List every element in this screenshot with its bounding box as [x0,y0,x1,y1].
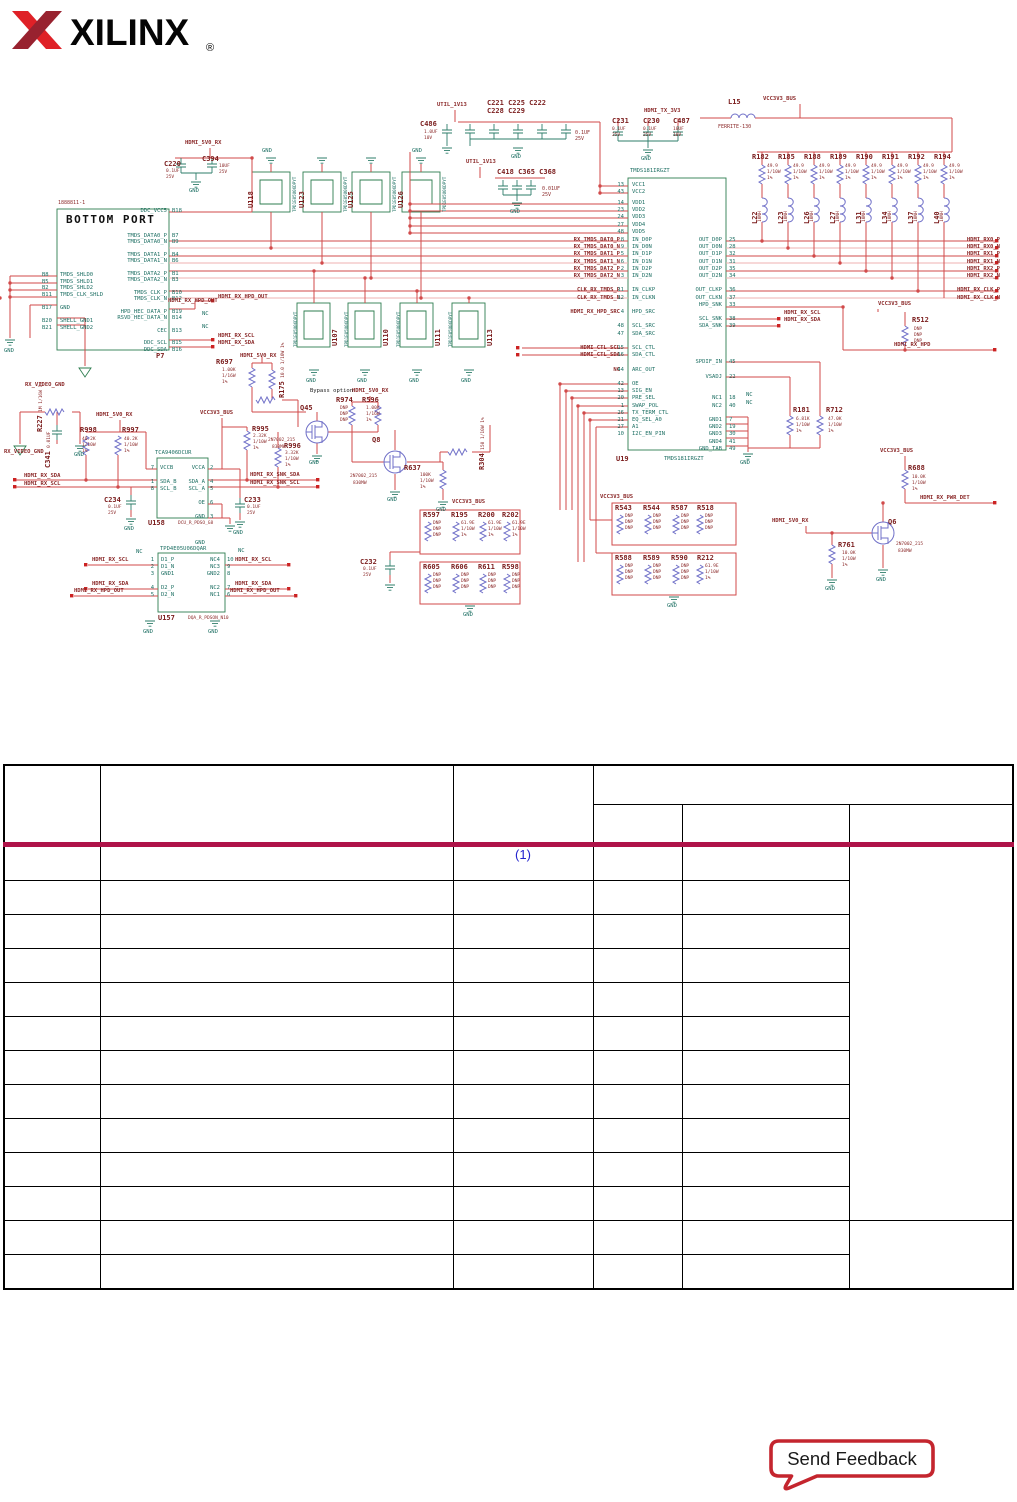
no-connect-flag: NC [202,324,209,331]
table-cell [4,1153,100,1187]
net-label: HDMI_RX_SDA [784,317,820,324]
ref-designator: R606 [451,563,468,571]
net-label: HDMI_RX_PWR_DET [920,495,970,502]
ref-designator: R589 [643,554,660,562]
component-value: 150 1/10W 1% [481,417,486,450]
table-cell [682,1255,849,1290]
ref-designator: U123 [298,191,306,208]
table-cell [682,949,849,983]
table-cell [100,1017,453,1051]
ref-designator: C230 [643,117,660,125]
table-cell [682,845,849,881]
component-value: 0.01UF 25V [542,186,560,199]
component-value: DNP DNP DNP [340,406,348,423]
ref-designator: R192 [908,153,925,161]
table-cell [453,983,593,1017]
component-value: DNP DNP DNP [512,573,520,590]
ref-designator: R512 [912,316,929,324]
resistor-label: R175 10.0 1/10W 1% [278,343,287,398]
table-cell [100,881,453,915]
no-connect-flag: NC [238,548,245,555]
component-value: 10NH [862,211,868,222]
table-cell [593,1153,682,1187]
feedback-button-label[interactable]: Send Feedback [787,1448,917,1469]
ref-designator: R543 [615,504,632,512]
ref-designator: L15 [728,98,741,106]
component-value: 49.9 1/10W 1% [845,164,859,181]
table-cell [593,881,682,915]
gnd-label: GND [4,348,14,355]
ref-designator: R597 [423,511,440,519]
ref-designator: R191 [882,153,899,161]
no-connect-flag: NC [202,311,209,318]
gnd-label: GND [463,612,473,619]
net-label: HDMI_5V0_RX [96,412,132,419]
component-value: 40.2K 1/10W 1% [82,437,96,454]
component-value: 10NH [758,211,764,222]
component-value: 1.0UF 10V [424,130,438,142]
no-connect-flag: NC [136,549,143,556]
pin-numbers: B18 B7 B9 B4 B6 B1 B3 B10 B12 B19 B14 B1… [172,208,182,353]
part-number: 2N7002_215 [350,474,377,480]
table-cell [682,881,849,915]
gnd-label: GND [189,188,199,195]
ref-designator: R598 [502,563,519,571]
ref-designator: R998 [80,426,97,434]
pin-numbers: 8 9 5 6 2 3 11 12 4 48 47 15 16 44 42 13… [610,237,624,439]
package-name: DQA_R_PDSON_N10 [188,616,229,622]
component-value: 49.9 1/10W 1% [897,164,911,181]
table-cell [453,881,593,915]
table-cell [682,1085,849,1119]
net-label: HDMI_RX_SCL [24,481,60,488]
table-cell [453,1187,593,1221]
gnd-label: GND [306,378,316,385]
table-cell [4,1221,100,1255]
table-cell [4,1119,100,1153]
component-value: 40.2K 1/10W 1% [124,437,138,454]
component-value: 10.0K 1/10W 1% [912,475,926,492]
component-value: 49.9 1/10W 1% [819,164,833,181]
gnd-label: GND [124,526,134,533]
resistor-label: R227 1M 1/16W 1% [36,382,45,432]
resistor-label: R304 150 1/10W 1% [478,417,487,470]
table-cell [593,1085,682,1119]
ref-designator: R181 [793,406,810,414]
component-value: 0.1UF 25V [108,505,122,517]
ref-designator: R182 [752,153,769,161]
table-subheader-cell [682,805,849,845]
table-cell [593,1221,682,1255]
ref-designator: R588 [615,554,632,562]
component-value: FERRITE-130 [718,124,751,130]
ref-designator: R587 [671,504,688,512]
pin-numbers: 25 28 32 31 35 34 36 37 33 38 39 45 22 1… [729,237,736,453]
table-cell [593,949,682,983]
component-value: 10NH [784,211,790,222]
ref-designator: C232 [360,558,377,566]
table-cell [682,1153,849,1187]
gnd-label: GND [412,148,422,155]
ref-designator: U158 [148,519,165,527]
gnd-label: GND [641,156,651,163]
ref-designator: R195 [451,511,468,519]
ref-designator: R194 [934,153,951,161]
component-value: 49.9 1/10W 1% [949,164,963,181]
table-cell [593,1119,682,1153]
ref-designator: R974 [336,396,353,404]
table-cell [453,1085,593,1119]
ref-designator: R518 [697,504,714,512]
table-cell [4,845,100,881]
table-header-cell [4,765,100,845]
gnd-label: GND [667,603,677,610]
part-number: TPD1E05U06DPYT [342,177,349,212]
table-cell [4,949,100,983]
no-connect-flag: NC [746,392,753,399]
table-row: (1) [4,845,1013,881]
ref-designator: C233 [244,496,261,504]
table-cell [682,1051,849,1085]
part-number: 1888811-1 [58,200,85,206]
component-value: 10NH [940,211,946,222]
component-value: 1.00K 1/16W 1% [366,406,380,423]
schematic-note: Bypass option [310,388,353,395]
net-label: VCC3V3_BUS [878,301,911,308]
ref-designator: Q6 [888,518,896,526]
ref-designator: Q8 [372,436,380,444]
table-cell [100,949,453,983]
component-value: 0.1UF 25V [575,130,590,143]
gnd-label: GND [876,577,886,584]
ref-designator: R189 [830,153,847,161]
table-cell [100,1085,453,1119]
component-value: 10.0K 1/10W 1% [842,551,856,568]
ref-designator: R200 [478,511,495,519]
table-header-cell [453,765,593,845]
ref-designator: R637 [404,464,421,472]
table-cell [100,1153,453,1187]
ref-designator: R611 [478,563,495,571]
gnd-label: GND [262,148,272,155]
table-cell [453,915,593,949]
table-cell [100,915,453,949]
component-value: DNP DNP DNP [625,514,633,531]
component-value: DNP DNP DNP [705,514,713,531]
send-feedback-button[interactable]: Send Feedback [765,1438,951,1498]
component-value: 3.32K 1/10W 1% [285,451,299,468]
ref-designator: C486 [420,120,437,128]
pin-numbers: 4 5 [146,585,154,599]
gnd-label: GND [143,629,153,636]
component-value: 10.0 1/10W 1% [281,343,286,378]
part-number: TPD1E05U06DPYT [441,177,448,212]
pin-numbers: 7 1 8 [146,465,154,493]
part-number: TPD1E05U06DPYT [447,312,454,347]
component-value: DNP DNP DNP [461,573,469,590]
table-header-cell [100,765,453,845]
net-label: HDMI_RX_SDA [24,473,60,480]
table-cell [453,1119,593,1153]
component-value: DNP DNP DNP [433,521,441,538]
ref-designator: R185 [778,153,795,161]
ref-designator: U118 [247,191,255,208]
ref-designator: P7 [156,352,164,360]
gnd-label: GND [309,460,319,467]
table-cell [453,1051,593,1085]
pin-names: NC4 NC3 GND2 [192,557,220,578]
table-subheader-cell [849,805,1013,845]
table-cell [4,1017,100,1051]
table-cell [593,1255,682,1290]
net-label: HDMI_5V0_RX [772,518,808,525]
pin-numbers: 14 23 24 27 48 [610,200,624,236]
net-label: VCC3V3_BUS [200,410,233,417]
component-value: 0.1UF 25V [166,169,180,181]
ref-designator: C418 C365 C368 [497,168,556,176]
component-value: DNP DNP DNP [625,564,633,581]
ref-designator: U19 [616,455,629,463]
pin-names: D2_P D2_N [161,585,174,599]
ref-designator: U110 [382,329,390,346]
component-value: 61.9E 1/10W 1% [461,521,475,538]
ref-designator: U157 [158,614,175,622]
component-value: 10NH [888,211,894,222]
component-value: 10NH [914,211,920,222]
pin-numbers: B8 B5 B2 B11 B17 B20 B21 [42,272,55,331]
table-cell [453,1153,593,1187]
component-value: 10UF 25V [219,164,230,176]
net-label: HDMI_RX_HPD_OUT [168,298,218,305]
ref-designator: C234 [104,496,121,504]
pin-names: VDD1 VDD2 VDD3 VDD4 VDD5 [632,200,645,236]
table-cell [4,1051,100,1085]
net-label: UTIL_1V13 [466,159,496,166]
net-label: HDMI_RX_HPD_OUT [230,588,280,595]
table-cell [100,983,453,1017]
table-cell [453,1221,593,1255]
ref-designator: C341 [44,451,52,468]
component-value: 1M 1/16W 1% [39,382,44,412]
pin-names: D1_P D1_N GND1 [161,557,174,578]
component-value: 100K 1/10W 1% [420,473,434,490]
component-value: 61.9E 1/10W 1% [705,564,719,581]
component-value: DNP DNP DNP [653,564,661,581]
table-merged-cell [849,845,1013,1221]
table-cell [593,915,682,949]
schematic-sheet-page: XILINX ® [0,0,1017,1502]
gnd-label: GND [233,530,243,537]
ref-designator: C231 [612,117,629,125]
net-label: HDMI_TX_3V3 [644,108,680,115]
component-value: 0.01UF [47,432,52,448]
no-connect-flag: NC [746,400,753,407]
ref-designator: R712 [826,406,843,414]
ref-designator: Q45 [300,404,313,412]
part-number: TPD1E05U06DPYT [395,312,402,347]
table-cell [453,949,593,983]
pin-names: NC2 NC1 [192,585,220,599]
ref-designator: C394 [202,155,219,163]
table-cell [100,845,453,881]
component-value: 830MW [353,481,367,487]
ref-designator: R590 [671,554,688,562]
table-cell [100,1221,453,1255]
component-value: 49.9 1/10W 1% [767,164,781,181]
table-cell [100,1051,453,1085]
ref-designator: R304 [478,453,486,470]
part-number: TPD1E05U06DPYT [343,312,350,347]
table-cell [100,1255,453,1290]
net-label: HDMI_RX_SCL [235,557,271,564]
ref-designator: R605 [423,563,440,571]
component-value: 830MW [898,549,912,555]
table-cell [4,1255,100,1290]
ref-designator: R544 [643,504,660,512]
pin-names: VCCA SDA_A SCL_A OE GND [175,465,205,521]
net-label: HDMI_RX_HPD [894,342,930,349]
table-subheader-cell [593,805,682,845]
pin-numbers: 10 9 8 [227,557,234,578]
part-number: TPD1E05U06DPYT [391,177,398,212]
table-cell [453,1255,593,1290]
table-cell [593,1187,682,1221]
net-label: HDMI_5V0_RX [240,353,276,360]
component-value: DNP DNP DNP [433,573,441,590]
table-cell [593,983,682,1017]
component-value: DNP DNP DNP [914,327,922,344]
gnd-label: GND [461,378,471,385]
net-label: HDMI_RX_SNK_SCL [250,480,300,487]
gnd-label: GND [409,378,419,385]
gnd-label: GND [825,586,835,593]
net-labels: HDMI_RX0_P HDMI_RX0_N HDMI_RX1_P HDMI_RX… [890,237,1000,302]
pin-numbers: 2 4 5 6 3 [210,465,213,521]
component-value: 830MW [272,445,286,451]
component-value: 0.1UF 25V [247,505,261,517]
table-merged-cell [849,1221,1013,1290]
table-cell [682,1221,849,1255]
table-cell [593,1051,682,1085]
component-value: 47.0K 1/10W 1% [828,417,842,434]
net-label: VCC3V3_BUS [763,96,796,103]
net-label: HDMI_RX_HPD_OUT [74,588,124,595]
part-number: TPD1E05U06DPYT [291,177,298,212]
table-cell [4,1187,100,1221]
part-number: TMDS181IRGZT [630,168,670,175]
ref-designator: U107 [331,329,339,346]
part-number: 2N7002_215 [268,438,295,444]
net-label: VCC3V3_BUS [880,448,913,455]
component-value: 6.81K 1/10W 1% [796,417,810,434]
capacitor-label: C341 0.01UF [44,432,53,468]
pin-names: DDC_VCC5 TMDS_DATA0_P TMDS_DATA0_N TMDS_… [80,208,167,353]
ref-designator: R596 [362,396,379,404]
ref-designator: R997 [122,426,139,434]
gnd-label: GND [740,460,750,467]
component-value: DNP DNP DNP [681,514,689,531]
table-cell [453,1017,593,1051]
package-name: DCU_R_PDSO_G8 [178,521,213,527]
net-label: VCC3V3_BUS [452,499,485,506]
component-value: 49.9 1/10W 1% [923,164,937,181]
ref-designator: R697 [216,358,233,366]
ref-designator: C487 [673,117,690,125]
part-number: TMDS181IRGZT [664,456,704,463]
net-label: HDMI_RX_HPD_OUT [218,294,268,301]
net-labels: RX_TMDS_DAT0_P RX_TMDS_DAT0_N RX_TMDS_DA… [508,237,620,374]
ref-designator: R761 [838,541,855,549]
component-value: 10NH [810,211,816,222]
table-cell [682,915,849,949]
component-value: DNP DNP DNP [681,564,689,581]
component-value: 2.32K 1/10W 1% [253,434,267,451]
ref-designator: U113 [486,329,494,346]
table-cell [682,1017,849,1051]
ref-designator: C221 C225 C222 C228 C229 [487,99,546,115]
ref-designator: R175 [278,381,286,398]
ref-designator: C220 [164,160,181,168]
part-number: 2N7002_215 [896,542,923,548]
pin-numbers: 13 43 [610,182,624,196]
net-label: HDMI_5V0_RX [185,140,221,147]
table-cell [4,983,100,1017]
component-value: 61.9E 1/10W 1% [512,521,526,538]
net-label: HDMI_RX_SNK_SDA [250,472,300,479]
table-cell [4,881,100,915]
gnd-label: GND [387,497,397,504]
component-value: 1.00K 1/16W 1% [222,368,236,385]
ref-designator: R995 [252,425,269,433]
component-value: DNP DNP DNP [653,514,661,531]
component-value: 61.9E 1/10W 1% [488,521,502,538]
gnd-label: GND [208,629,218,636]
component-value: 0.1UF 25V [612,127,626,139]
empty-parameters-table: (1) [3,764,1014,1290]
table-cell [4,1085,100,1119]
ref-designator: R202 [502,511,519,519]
component-value: DNP DNP DNP [488,573,496,590]
component-value: 10UF 10V [673,127,684,139]
part-number: TCA9406DCUR [155,450,191,457]
gnd-label: GND [510,209,520,216]
ref-designator: R227 [36,415,44,432]
ref-designator: U111 [434,329,442,346]
net-label: HDMI_5V0_RX [352,388,388,395]
net-label: VCC3V3_BUS [600,494,633,501]
table-cell [593,845,682,881]
table-cell [593,1017,682,1051]
component-value: 0.1UF 25V [363,567,377,579]
pin-names: VCC1 VCC2 [632,182,645,196]
component-value: 49.9 1/10W 1% [871,164,885,181]
gnd-label: GND [511,154,521,161]
table-footnote-cell: (1) [453,845,593,881]
gnd-label: GND [195,540,205,547]
table-row [4,1221,1013,1255]
ref-designator: R190 [856,153,873,161]
table-cell [682,1187,849,1221]
pin-numbers: 1 2 3 [146,557,154,578]
table-cell [100,1119,453,1153]
component-value: 49.9 1/10W 1% [793,164,807,181]
net-label: UTIL_1V13 [437,102,467,109]
table-cell [100,1187,453,1221]
table-cell [682,1119,849,1153]
component-value: 10NH [836,211,842,222]
ref-designator: R688 [908,464,925,472]
table-group-header-cell [593,765,1013,805]
